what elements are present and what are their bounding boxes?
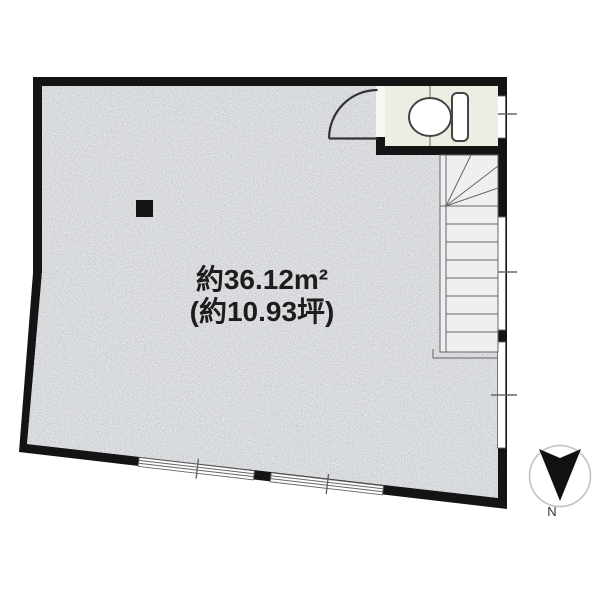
- staircase: [433, 155, 498, 358]
- door-opening: [376, 86, 385, 138]
- floor-plan: 約36.12m² (約10.93坪) N: [0, 0, 600, 600]
- toilet-room: [376, 86, 507, 155]
- north-arrow-icon: [539, 449, 581, 501]
- compass: N: [530, 446, 591, 520]
- window: [498, 217, 506, 330]
- north-label: N: [547, 504, 556, 519]
- pillar: [136, 200, 153, 217]
- window: [498, 96, 506, 138]
- floor-plan-page: 約36.12m² (約10.93坪) N: [0, 0, 600, 600]
- area-label-tsubo: (約10.93坪): [190, 295, 335, 327]
- area-label-sqm: 約36.12m²: [196, 263, 328, 295]
